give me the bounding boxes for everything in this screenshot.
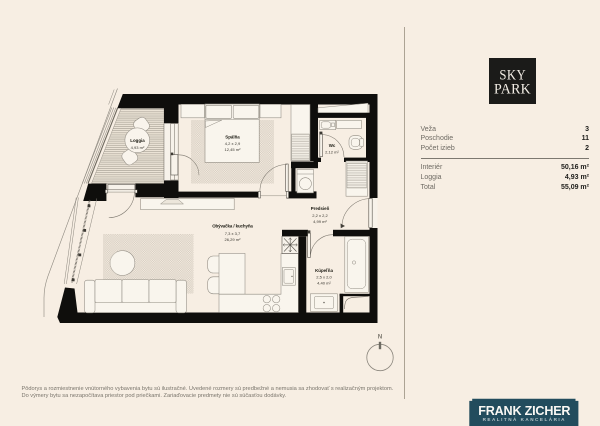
svg-text:Kúpeľňa: Kúpeľňa bbox=[315, 268, 333, 273]
svg-text:Wc: Wc bbox=[329, 143, 336, 148]
svg-text:Loggia: Loggia bbox=[130, 138, 145, 143]
svg-text:7,3 x 3,7: 7,3 x 3,7 bbox=[225, 231, 241, 236]
svg-text:4,2 x 2,9: 4,2 x 2,9 bbox=[225, 141, 241, 146]
svg-text:FRANK ZICHER: FRANK ZICHER bbox=[478, 404, 570, 418]
svg-text:Predsieň: Predsieň bbox=[311, 206, 330, 211]
svg-text:Spálňa: Spálňa bbox=[225, 134, 240, 139]
svg-text:N: N bbox=[378, 333, 383, 340]
svg-text:4,93 m²: 4,93 m² bbox=[131, 145, 145, 150]
svg-text:26,29 m²: 26,29 m² bbox=[225, 237, 242, 242]
svg-text:2,12 m²: 2,12 m² bbox=[325, 150, 339, 155]
svg-text:4,99 m²: 4,99 m² bbox=[313, 219, 327, 224]
svg-text:2,2 x 2,2: 2,2 x 2,2 bbox=[312, 213, 328, 218]
svg-text:12,45 m²: 12,45 m² bbox=[225, 147, 242, 152]
svg-text:PARK: PARK bbox=[494, 81, 531, 98]
svg-text:REALITNÁ KANCELÁRIA: REALITNÁ KANCELÁRIA bbox=[483, 416, 566, 422]
svg-text:Obývačka / kuchyňa: Obývačka / kuchyňa bbox=[212, 223, 253, 228]
svg-text:2,5 x 2,0: 2,5 x 2,0 bbox=[316, 274, 332, 279]
svg-text:4,40 m²: 4,40 m² bbox=[317, 281, 331, 286]
